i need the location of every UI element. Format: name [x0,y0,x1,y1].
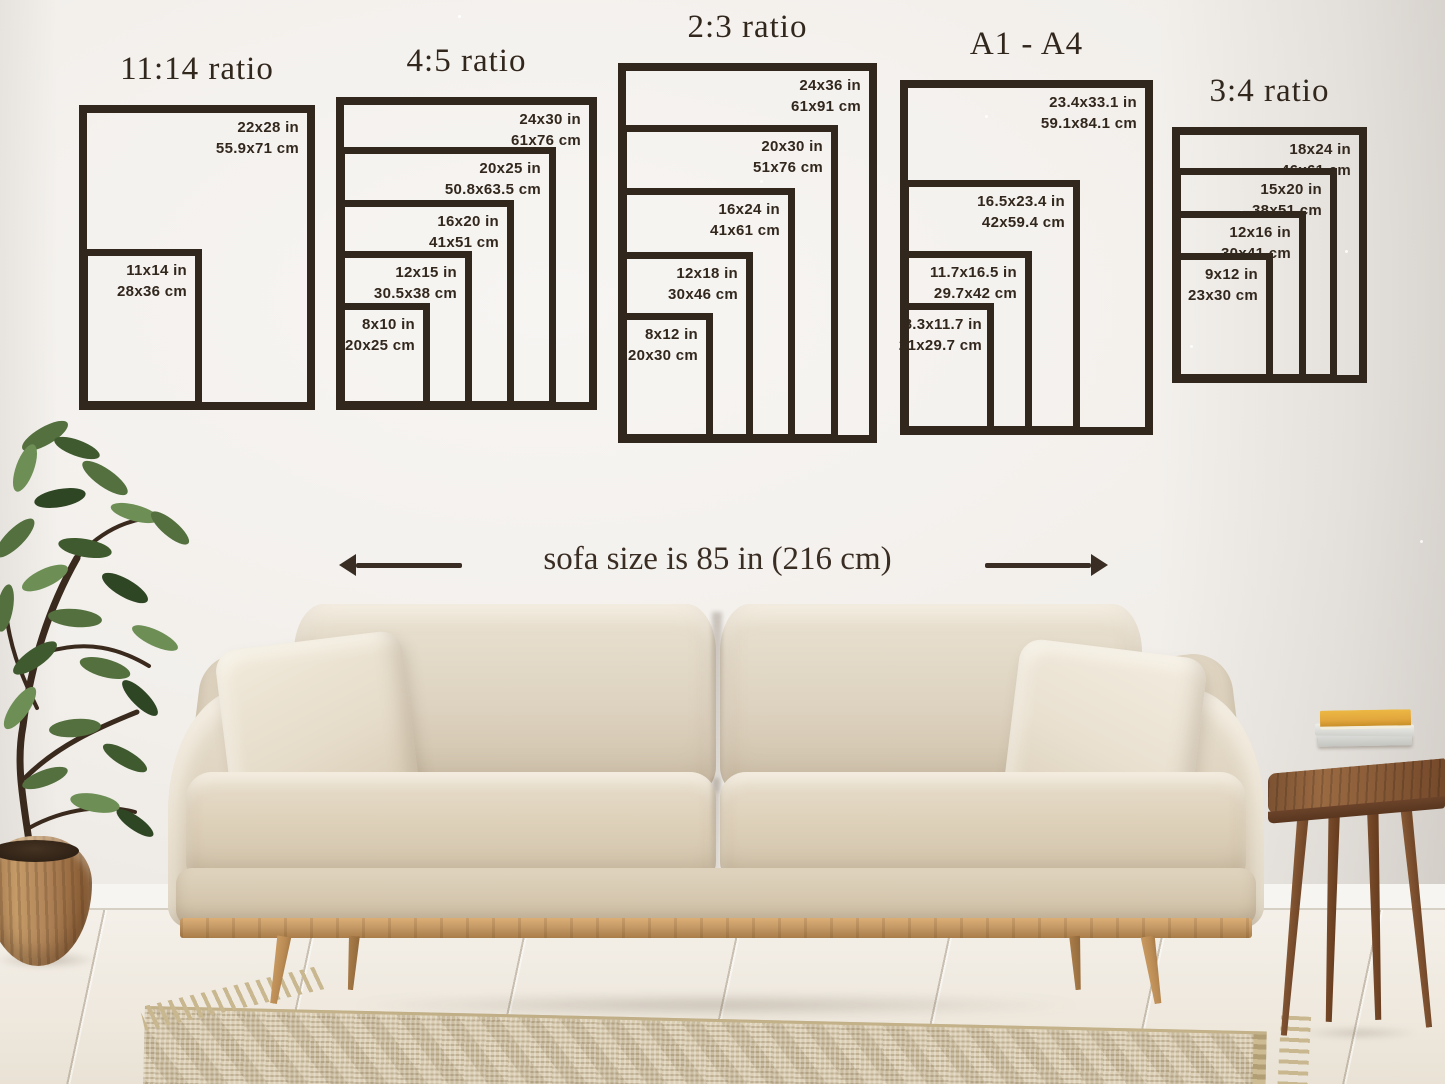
size-label-cm: 50.8x63.5 cm [445,180,541,201]
size-label-cm: 21x29.7 cm [899,336,982,357]
sofa-seat-cushion-right [720,772,1246,882]
table-leg [1321,812,1341,1022]
ratio-group-title: 4:5 ratio [407,43,527,81]
table-leg [1365,810,1385,1020]
size-label-cm: 20x30 cm [628,346,698,367]
size-label-in: 12x18 in [668,264,738,285]
ratio-group-title: 11:14 ratio [120,51,274,89]
size-label-in: 12x16 in [1221,223,1291,244]
wall-speckles [458,15,461,18]
table-shadow [1274,1024,1444,1042]
ratio-group-title: A1 - A4 [970,26,1083,64]
book [1320,709,1411,730]
size-label-in: 8.3x11.7 in [899,315,982,336]
size-label-in: 8x10 in [345,315,415,336]
ratio-group-3-4: 3:4 ratio 18x24 in46x61 cm 15x20 in38x51… [1172,127,1367,383]
size-label-in: 24x36 in [791,76,861,97]
ratio-group-11-14: 11:14 ratio 22x28 in55.9x71 cm 11x14 in2… [79,105,315,410]
sofa-leg [263,935,295,1006]
size-frame: 11x14 in28x36 cm [81,249,202,408]
size-label-in: 23.4x33.1 in [1041,93,1137,114]
size-frame: 9x12 in23x30 cm [1174,253,1273,381]
size-label-cm: 29.7x42 cm [930,284,1017,305]
ratio-group-4-5: 4:5 ratio 24x30 in61x76 cm 20x25 in50.8x… [336,97,597,410]
size-label-in: 18x24 in [1281,140,1351,161]
sofa-seat-cushion-left [186,772,716,882]
table-leg [1276,814,1310,1036]
size-label-in: 9x12 in [1188,265,1258,286]
sofa-cushion-gap [712,612,722,792]
right-arrow-icon [985,563,1091,568]
plant-foliage [0,415,194,841]
rug-bound-edge [1251,1034,1267,1084]
sofa-leg [342,935,363,990]
size-label-in: 22x28 in [216,118,299,139]
size-label-cm: 28x36 cm [117,282,187,303]
pot-soil [0,840,79,862]
size-label-in: 24x30 in [511,110,581,131]
size-frame: 8x10 in20x25 cm [338,303,430,408]
side-table [1268,752,1445,1042]
size-label-in: 16x20 in [429,212,499,233]
size-label-cm: 30x46 cm [668,285,738,306]
size-label-in: 20x25 in [445,159,541,180]
sofa-shadow [188,990,1244,1020]
size-label-cm: 30.5x38 cm [374,284,457,305]
size-label-in: 20x30 in [753,137,823,158]
size-label-in: 11.7x16.5 in [930,263,1017,284]
ratio-group-2-3: 2:3 ratio 24x36 in61x91 cm 20x30 in51x76… [618,63,877,443]
size-label-cm: 55.9x71 cm [216,139,299,160]
size-label-cm: 20x25 cm [345,336,415,357]
size-label-cm: 41x61 cm [710,221,780,242]
size-label-in: 16x24 in [710,200,780,221]
table-leg [1398,806,1436,1028]
size-label-in: 8x12 in [628,325,698,346]
size-frame: 8.3x11.7 in21x29.7 cm [902,303,994,433]
ratio-group-a1-a4: A1 - A4 23.4x33.1 in59.1x84.1 cm 16.5x23… [900,80,1153,435]
ratio-group-title: 2:3 ratio [688,9,808,47]
sofa [168,596,1264,1016]
size-label-cm: 23x30 cm [1188,286,1258,307]
living-room-scene: 11:14 ratio 22x28 in55.9x71 cm 11x14 in2… [0,0,1445,1084]
size-label-in: 16.5x23.4 in [977,192,1065,213]
size-label-in: 12x15 in [374,263,457,284]
size-label-cm: 42x59.4 cm [977,213,1065,234]
ratio-group-title: 3:4 ratio [1210,73,1330,111]
size-label-cm: 61x91 cm [791,97,861,118]
sofa-wood-rail [180,918,1252,938]
sofa-seat-gap [712,778,720,878]
size-frame: 8x12 in20x30 cm [620,313,713,441]
size-label-in: 11x14 in [117,261,187,282]
size-label-cm: 59.1x84.1 cm [1041,114,1137,135]
sofa-size-annotation: sofa size is 85 in (216 cm) [430,540,1005,580]
sofa-leg [1066,935,1087,990]
size-label-in: 15x20 in [1252,180,1322,201]
sofa-leg [1137,935,1169,1006]
size-label-cm: 51x76 cm [753,158,823,179]
